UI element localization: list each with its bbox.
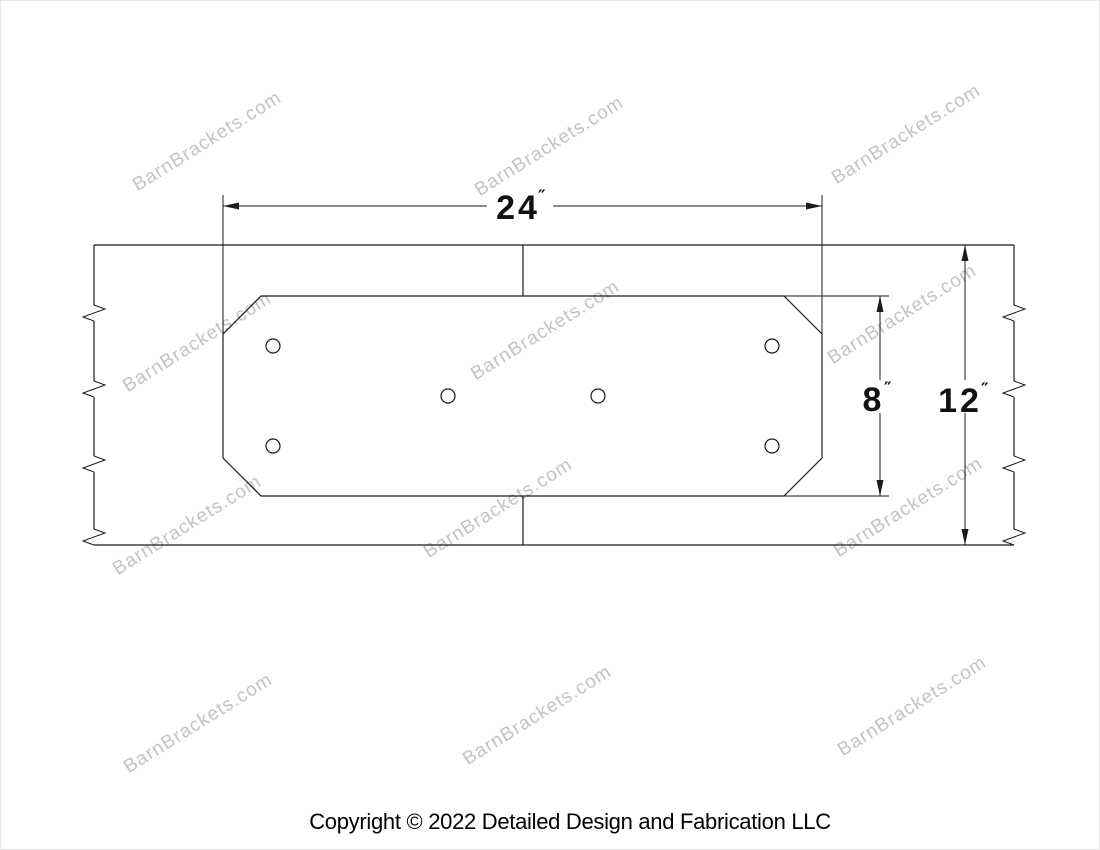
bracket-plate bbox=[223, 296, 822, 496]
watermark-text: BarnBrackets.com bbox=[467, 276, 623, 385]
watermark-text: BarnBrackets.com bbox=[834, 652, 990, 761]
break-mark bbox=[1003, 381, 1025, 397]
dim-beam-height-unit: ″ bbox=[981, 380, 989, 400]
arrowhead-right bbox=[806, 203, 822, 210]
plate-outline bbox=[223, 296, 822, 496]
dim-beam-height-value: 12 bbox=[938, 382, 982, 420]
arrowhead-down bbox=[962, 529, 969, 545]
break-mark bbox=[1003, 305, 1025, 321]
bolt-hole bbox=[266, 339, 280, 353]
arrowhead-up bbox=[962, 245, 969, 261]
bolt-hole bbox=[765, 439, 779, 453]
watermark-text: BarnBrackets.com bbox=[824, 260, 980, 369]
bracket-drawing-svg: BarnBrackets.com BarnBrackets.com BarnBr… bbox=[1, 1, 1100, 850]
watermark-text: BarnBrackets.com bbox=[828, 80, 984, 189]
break-mark bbox=[83, 305, 105, 321]
dim-plate-height-unit: ″ bbox=[884, 379, 892, 399]
break-mark bbox=[1003, 456, 1025, 472]
break-mark bbox=[83, 529, 105, 545]
watermark-text: BarnBrackets.com bbox=[420, 454, 576, 563]
bolt-hole bbox=[765, 339, 779, 353]
dim-plate-width-value: 24 bbox=[496, 189, 540, 227]
arrowhead-down bbox=[877, 480, 884, 496]
break-mark bbox=[83, 456, 105, 472]
watermark-text: BarnBrackets.com bbox=[459, 661, 615, 770]
watermark-text: BarnBrackets.com bbox=[471, 92, 627, 201]
watermark-text: BarnBrackets.com bbox=[129, 87, 285, 196]
dim-plate-width-unit: ″ bbox=[538, 187, 546, 207]
arrowhead-up bbox=[877, 296, 884, 312]
bolt-hole bbox=[591, 389, 605, 403]
watermark-text: BarnBrackets.com bbox=[109, 471, 265, 580]
break-mark bbox=[1003, 529, 1025, 545]
bolt-hole bbox=[266, 439, 280, 453]
copyright-text: Copyright © 2022 Detailed Design and Fab… bbox=[309, 809, 831, 834]
watermark-text: BarnBrackets.com bbox=[120, 669, 276, 778]
break-mark bbox=[83, 381, 105, 397]
arrowhead-left bbox=[223, 203, 239, 210]
bolt-hole bbox=[441, 389, 455, 403]
dim-plate-height-value: 8 bbox=[863, 381, 882, 419]
watermark-layer: BarnBrackets.com BarnBrackets.com BarnBr… bbox=[109, 80, 990, 778]
technical-drawing-canvas: BarnBrackets.com BarnBrackets.com BarnBr… bbox=[0, 0, 1100, 850]
